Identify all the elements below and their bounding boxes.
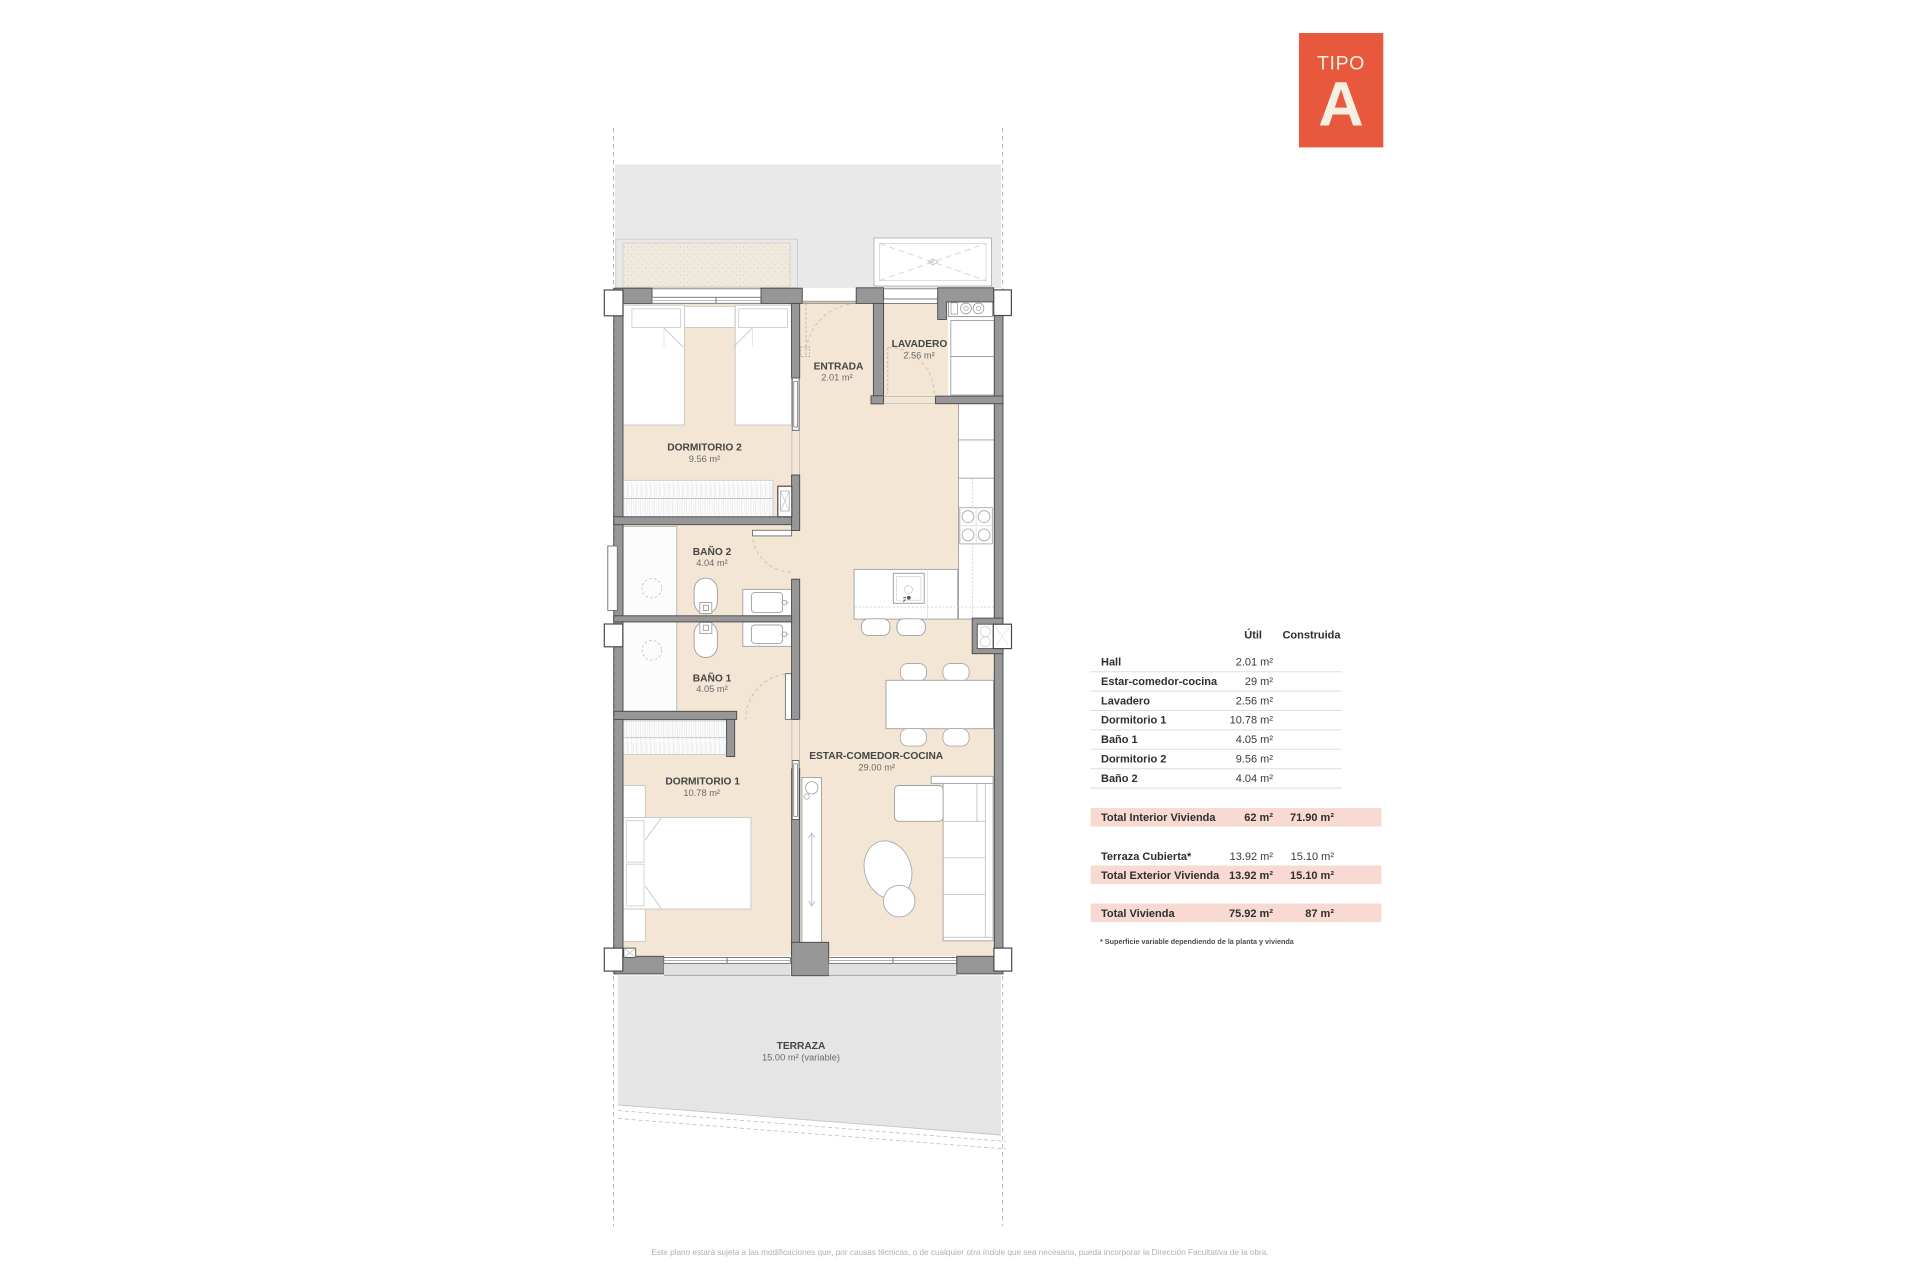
svg-text:75.92 m²: 75.92 m² xyxy=(1229,908,1273,920)
svg-text:15.10 m²: 15.10 m² xyxy=(1291,851,1335,863)
svg-text:TERRAZA: TERRAZA xyxy=(777,1041,826,1052)
svg-text:13.92 m²: 13.92 m² xyxy=(1229,870,1273,882)
svg-text:Total Exterior Vivienda: Total Exterior Vivienda xyxy=(1101,870,1220,882)
svg-text:10.78 m²: 10.78 m² xyxy=(683,788,720,798)
svg-text:71.90 m²: 71.90 m² xyxy=(1290,812,1334,824)
svg-text:13.92 m²: 13.92 m² xyxy=(1230,851,1274,863)
svg-text:Dormitorio 2: Dormitorio 2 xyxy=(1101,754,1166,766)
svg-text:29.00 m²: 29.00 m² xyxy=(858,762,895,772)
svg-text:4.05 m²: 4.05 m² xyxy=(1236,734,1274,746)
svg-text:9.56 m²: 9.56 m² xyxy=(689,454,721,464)
svg-text:Dormitorio 1: Dormitorio 1 xyxy=(1101,715,1166,727)
svg-text:ENTRADA: ENTRADA xyxy=(814,361,864,372)
svg-text:15.00 m² (variable): 15.00 m² (variable) xyxy=(762,1053,840,1063)
svg-text:9.56 m²: 9.56 m² xyxy=(1236,754,1274,766)
svg-text:Este plano estará sujeta a las: Este plano estará sujeta a las modificac… xyxy=(651,1248,1268,1257)
svg-text:DORMITORIO 1: DORMITORIO 1 xyxy=(665,777,740,788)
svg-text:Lavadero: Lavadero xyxy=(1101,695,1150,707)
svg-text:29 m²: 29 m² xyxy=(1245,676,1273,688)
svg-text:Estar-comedor-cocina: Estar-comedor-cocina xyxy=(1101,676,1218,688)
svg-text:Hall: Hall xyxy=(1101,657,1121,669)
svg-text:Construida: Construida xyxy=(1282,629,1341,641)
svg-text:* Superficie variable dependie: * Superficie variable dependiendo de la … xyxy=(1100,937,1295,946)
svg-text:Terraza Cubierta*: Terraza Cubierta* xyxy=(1101,851,1192,863)
svg-text:2.01 m²: 2.01 m² xyxy=(821,372,853,382)
svg-text:15.10 m²: 15.10 m² xyxy=(1290,870,1334,882)
svg-text:10.78 m²: 10.78 m² xyxy=(1230,715,1274,727)
svg-text:ESTAR-COMEDOR-COCINA: ESTAR-COMEDOR-COCINA xyxy=(809,751,944,762)
svg-text:4.05 m²: 4.05 m² xyxy=(696,684,728,694)
svg-text:LAVADERO: LAVADERO xyxy=(892,339,948,350)
svg-text:Baño 2: Baño 2 xyxy=(1101,773,1138,785)
svg-text:Total Interior Vivienda: Total Interior Vivienda xyxy=(1101,812,1216,824)
svg-text:Total Vivienda: Total Vivienda xyxy=(1101,908,1175,920)
svg-text:DORMITORIO 2: DORMITORIO 2 xyxy=(667,443,742,454)
svg-text:Útil: Útil xyxy=(1244,628,1262,641)
svg-text:4.04 m²: 4.04 m² xyxy=(696,558,728,568)
svg-text:62 m²: 62 m² xyxy=(1244,812,1273,824)
svg-text:BAÑO 1: BAÑO 1 xyxy=(693,672,732,685)
svg-text:87 m²: 87 m² xyxy=(1305,908,1334,920)
svg-text:A: A xyxy=(1318,70,1364,140)
svg-text:2.56 m²: 2.56 m² xyxy=(903,351,935,361)
svg-text:BAÑO 2: BAÑO 2 xyxy=(693,545,732,558)
svg-text:4.04 m²: 4.04 m² xyxy=(1236,773,1274,785)
svg-text:2.56 m²: 2.56 m² xyxy=(1236,695,1274,707)
svg-text:2.01 m²: 2.01 m² xyxy=(1236,657,1274,669)
svg-text:Baño 1: Baño 1 xyxy=(1101,734,1138,746)
